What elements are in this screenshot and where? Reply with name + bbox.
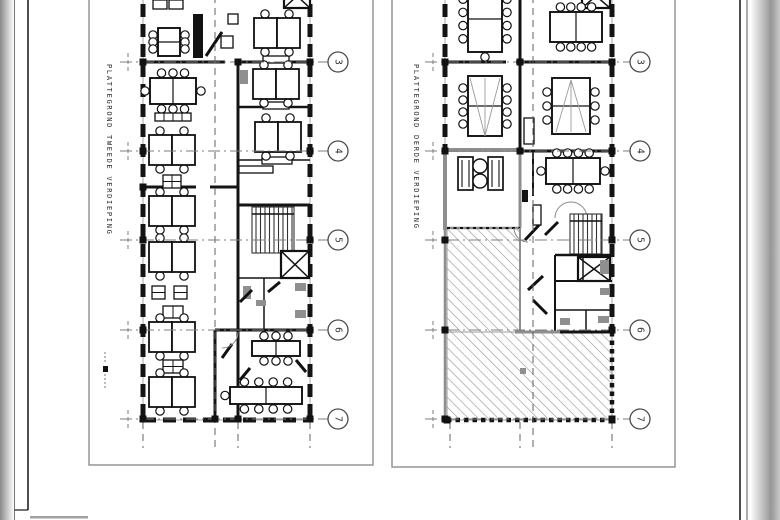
- desk-cluster: [149, 314, 195, 360]
- chair-icon: [286, 152, 294, 160]
- left-plan-title: PLATTEGROND TWEEDE VERDIEPING: [105, 64, 113, 236]
- wall-node: [609, 59, 616, 66]
- chair-icon: [503, 21, 511, 29]
- desk-cluster: [255, 114, 301, 160]
- grid-bubble: 3: [328, 52, 348, 72]
- grid-bubble-label: 4: [635, 148, 646, 154]
- desk: [254, 18, 277, 48]
- chair-icon: [283, 378, 291, 386]
- chair-icon: [585, 149, 593, 157]
- chair-icon: [272, 357, 280, 365]
- wall-node: [609, 417, 616, 424]
- stairs: [570, 214, 602, 254]
- chair-icon: [156, 369, 164, 377]
- meeting-table-group: [550, 3, 602, 51]
- door-leaf: [533, 300, 547, 314]
- chair-icon: [221, 391, 229, 399]
- chair-icon: [481, 53, 489, 61]
- stair-outline: [570, 214, 602, 254]
- chair-icon: [181, 45, 189, 53]
- desk: [276, 69, 299, 99]
- desk: [172, 135, 195, 165]
- wall-node: [442, 59, 449, 66]
- chair-icon: [180, 69, 188, 77]
- meeting-table-group: [221, 378, 302, 413]
- chair-icon: [180, 105, 188, 113]
- floor-plan-right: 34567: [425, 0, 650, 448]
- chair-icon: [563, 149, 571, 157]
- sanitary-fixture: [600, 260, 609, 274]
- chair-icon: [156, 272, 164, 280]
- chair-icon: [261, 10, 269, 18]
- solid-block: [103, 366, 108, 372]
- wall-node: [212, 416, 219, 423]
- chair-icon: [459, 35, 467, 43]
- desk: [253, 69, 276, 99]
- chair-icon: [180, 234, 188, 242]
- chair-icon: [180, 165, 188, 173]
- wall-node: [307, 416, 314, 423]
- desk-cluster: [253, 61, 299, 107]
- door-leaf: [296, 360, 306, 372]
- wall-node: [609, 237, 616, 244]
- hatched-roof-area: [447, 228, 520, 332]
- square-table: [155, 113, 191, 121]
- chair-icon: [180, 352, 188, 360]
- wall-node: [140, 327, 147, 334]
- door-leaf: [206, 32, 222, 56]
- chair-icon: [272, 332, 280, 340]
- desk: [278, 122, 301, 152]
- chair-icon: [591, 116, 599, 124]
- chair-icon: [180, 407, 188, 415]
- chair-icon: [601, 167, 609, 175]
- desk-cluster: [149, 188, 195, 234]
- desk: [172, 322, 195, 352]
- chair-icon: [240, 405, 248, 413]
- desk: [149, 377, 172, 407]
- chair-icon: [180, 272, 188, 280]
- chair-icon: [286, 114, 294, 122]
- chair-icon: [459, 108, 467, 116]
- chair-icon: [255, 378, 263, 386]
- chair-icon: [285, 10, 293, 18]
- door-leaf: [545, 222, 558, 235]
- grid-bubble: 4: [630, 141, 650, 161]
- chair-icon: [156, 165, 164, 173]
- chair-icon: [149, 45, 157, 53]
- door-leaf: [528, 276, 543, 290]
- cabinet: [153, 0, 167, 9]
- grid-bubble: 5: [328, 230, 348, 250]
- chair-icon: [574, 149, 582, 157]
- wall-node: [140, 237, 147, 244]
- wall-node: [307, 59, 314, 66]
- square-table: [152, 286, 165, 299]
- chair-icon: [269, 405, 277, 413]
- chair-icon: [577, 3, 585, 11]
- armchair: [458, 157, 473, 190]
- sanitary-fixture: [295, 310, 306, 318]
- chair-icon: [574, 185, 582, 193]
- chair-icon: [255, 405, 263, 413]
- sanitary-fixture: [295, 283, 306, 291]
- chair-icon: [543, 116, 551, 124]
- chair-icon: [577, 43, 585, 51]
- square-table: [163, 175, 181, 188]
- sanitary-fixture: [256, 300, 266, 306]
- wall-node: [442, 327, 449, 334]
- cutoff-titleblock-edge: [30, 516, 88, 519]
- cabinet: [169, 0, 183, 9]
- meeting-table-group: [459, 0, 511, 61]
- chair-icon: [157, 105, 165, 113]
- chair-icon: [567, 43, 575, 51]
- meeting-table-group: [252, 332, 300, 365]
- armchair-body: [488, 157, 503, 190]
- grid-bubble: 5: [630, 230, 650, 250]
- grid-bubble-label: 5: [333, 237, 344, 243]
- chair-icon: [284, 99, 292, 107]
- cabinet: [228, 14, 238, 24]
- chair-icon: [503, 96, 511, 104]
- meeting-table-group: [149, 28, 189, 56]
- desk: [149, 242, 172, 272]
- chair-icon: [543, 88, 551, 96]
- scan-shadow-right: [750, 0, 780, 520]
- chair-icon: [156, 234, 164, 242]
- cabinet: [239, 166, 273, 173]
- solid-block: [522, 190, 528, 202]
- armchair-body: [458, 157, 473, 190]
- chair-icon: [156, 407, 164, 415]
- desk-cluster: [149, 234, 195, 280]
- cabinet: [533, 205, 541, 225]
- grid-bubble: 3: [630, 52, 650, 72]
- chair-icon: [180, 127, 188, 135]
- chair-icon: [459, 8, 467, 16]
- chair-icon: [585, 185, 593, 193]
- chair-icon: [503, 35, 511, 43]
- chair-icon: [563, 185, 571, 193]
- grid-bubble-label: 7: [635, 416, 646, 422]
- elevator: [284, 0, 310, 8]
- grid-bubble-label: 6: [635, 327, 646, 333]
- stairs: [252, 207, 294, 253]
- chair-icon: [262, 114, 270, 122]
- chair-icon: [591, 102, 599, 110]
- floor-plan-left: 34567: [103, 0, 348, 448]
- grid-bubble-label: 6: [333, 327, 344, 333]
- wall-node: [140, 416, 147, 423]
- chair-icon: [503, 120, 511, 128]
- desk: [172, 242, 195, 272]
- wall-node: [517, 148, 524, 155]
- wall-node: [235, 59, 242, 66]
- chair-icon: [503, 108, 511, 116]
- chair-icon: [553, 149, 561, 157]
- chair-icon: [180, 226, 188, 234]
- sanitary-fixture: [560, 318, 570, 325]
- desk-cluster: [254, 10, 300, 56]
- chair-icon: [285, 48, 293, 56]
- desk: [149, 135, 172, 165]
- chair-icon: [459, 21, 467, 29]
- solid-block: [193, 14, 203, 58]
- wall-node: [609, 327, 616, 334]
- right-plan-title: PLATTEGROND DERDE VERDIEPING: [412, 64, 420, 230]
- wall-node: [140, 184, 147, 191]
- grid-bubble: 7: [630, 409, 650, 429]
- chair-icon: [503, 84, 511, 92]
- desk: [149, 196, 172, 226]
- meeting-table-group: [537, 149, 609, 193]
- chair-icon: [459, 84, 467, 92]
- wall-node: [235, 416, 242, 423]
- sheet-canvas: PLATTEGROND TWEEDE VERDIEPING PLATTEGRON…: [0, 0, 780, 520]
- scanned-sheet: { "sheet": { "type": "architectural-floo…: [0, 0, 780, 520]
- wall-node: [442, 237, 449, 244]
- wall-node: [140, 59, 147, 66]
- chair-icon: [180, 369, 188, 377]
- chair-icon: [180, 314, 188, 322]
- wall-node: [444, 417, 451, 424]
- scan-shadow-left: [0, 0, 14, 520]
- chair-icon: [262, 152, 270, 160]
- desk: [149, 322, 172, 352]
- chair-icon: [567, 3, 575, 11]
- chair-icon: [537, 167, 545, 175]
- desk: [277, 18, 300, 48]
- chair-icon: [284, 332, 292, 340]
- grid-bubble: 6: [630, 320, 650, 340]
- chair-icon: [169, 69, 177, 77]
- chair-icon: [156, 188, 164, 196]
- chair-icon: [260, 332, 268, 340]
- chair-icon: [503, 0, 511, 3]
- chair-icon: [180, 188, 188, 196]
- cabinet: [221, 36, 233, 48]
- sanitary-fixture: [598, 316, 609, 323]
- wall-node: [140, 148, 147, 155]
- sanitary-fixture: [520, 368, 526, 374]
- chair-icon: [591, 88, 599, 96]
- sanitary-fixture: [240, 70, 248, 84]
- desk: [172, 196, 195, 226]
- hatched-roof-area: [447, 332, 612, 420]
- round-table: [473, 159, 487, 173]
- chair-icon: [197, 87, 205, 95]
- chair-icon: [156, 127, 164, 135]
- grid-bubble: 7: [328, 409, 348, 429]
- chair-icon: [141, 87, 149, 95]
- wall-node: [442, 148, 449, 155]
- meeting-table: [468, 0, 502, 52]
- grid-bubble: 6: [328, 320, 348, 340]
- chair-icon: [156, 226, 164, 234]
- door-leaf: [268, 282, 280, 292]
- wall-node: [307, 327, 314, 334]
- sanitary-fixture: [600, 288, 610, 295]
- wall-node: [307, 237, 314, 244]
- desk: [172, 377, 195, 407]
- chair-icon: [459, 96, 467, 104]
- desk-cluster: [149, 369, 195, 415]
- chair-icon: [459, 0, 467, 3]
- grid-bubble-label: 5: [635, 237, 646, 243]
- grid-bubble-label: 3: [333, 59, 344, 65]
- chair-icon: [156, 314, 164, 322]
- desk-cluster: [149, 127, 195, 173]
- elevator: [281, 251, 309, 278]
- armchair: [488, 157, 503, 190]
- chair-icon: [553, 185, 561, 193]
- square-table: [174, 286, 187, 299]
- chair-icon: [169, 105, 177, 113]
- chair-icon: [587, 3, 595, 11]
- chair-icon: [587, 43, 595, 51]
- grid-bubble: 4: [328, 141, 348, 161]
- door-swing-arc: [222, 332, 238, 348]
- chair-icon: [556, 43, 564, 51]
- meeting-table-group: [141, 69, 205, 113]
- grid-bubble-label: 3: [635, 59, 646, 65]
- desk: [255, 122, 278, 152]
- chair-icon: [459, 120, 467, 128]
- chair-icon: [156, 352, 164, 360]
- chair-icon: [284, 357, 292, 365]
- chair-icon: [503, 8, 511, 16]
- chair-icon: [556, 3, 564, 11]
- chair-icon: [260, 99, 268, 107]
- chair-icon: [157, 69, 165, 77]
- chair-icon: [261, 48, 269, 56]
- chair-icon: [283, 405, 291, 413]
- chair-icon: [260, 357, 268, 365]
- wall-node: [609, 148, 616, 155]
- chair-icon: [543, 102, 551, 110]
- wall-node: [517, 59, 524, 66]
- grid-bubble-label: 7: [333, 416, 344, 422]
- wall-node: [307, 148, 314, 155]
- chair-icon: [269, 378, 277, 386]
- grid-bubble-label: 4: [333, 148, 344, 154]
- round-table: [473, 174, 487, 188]
